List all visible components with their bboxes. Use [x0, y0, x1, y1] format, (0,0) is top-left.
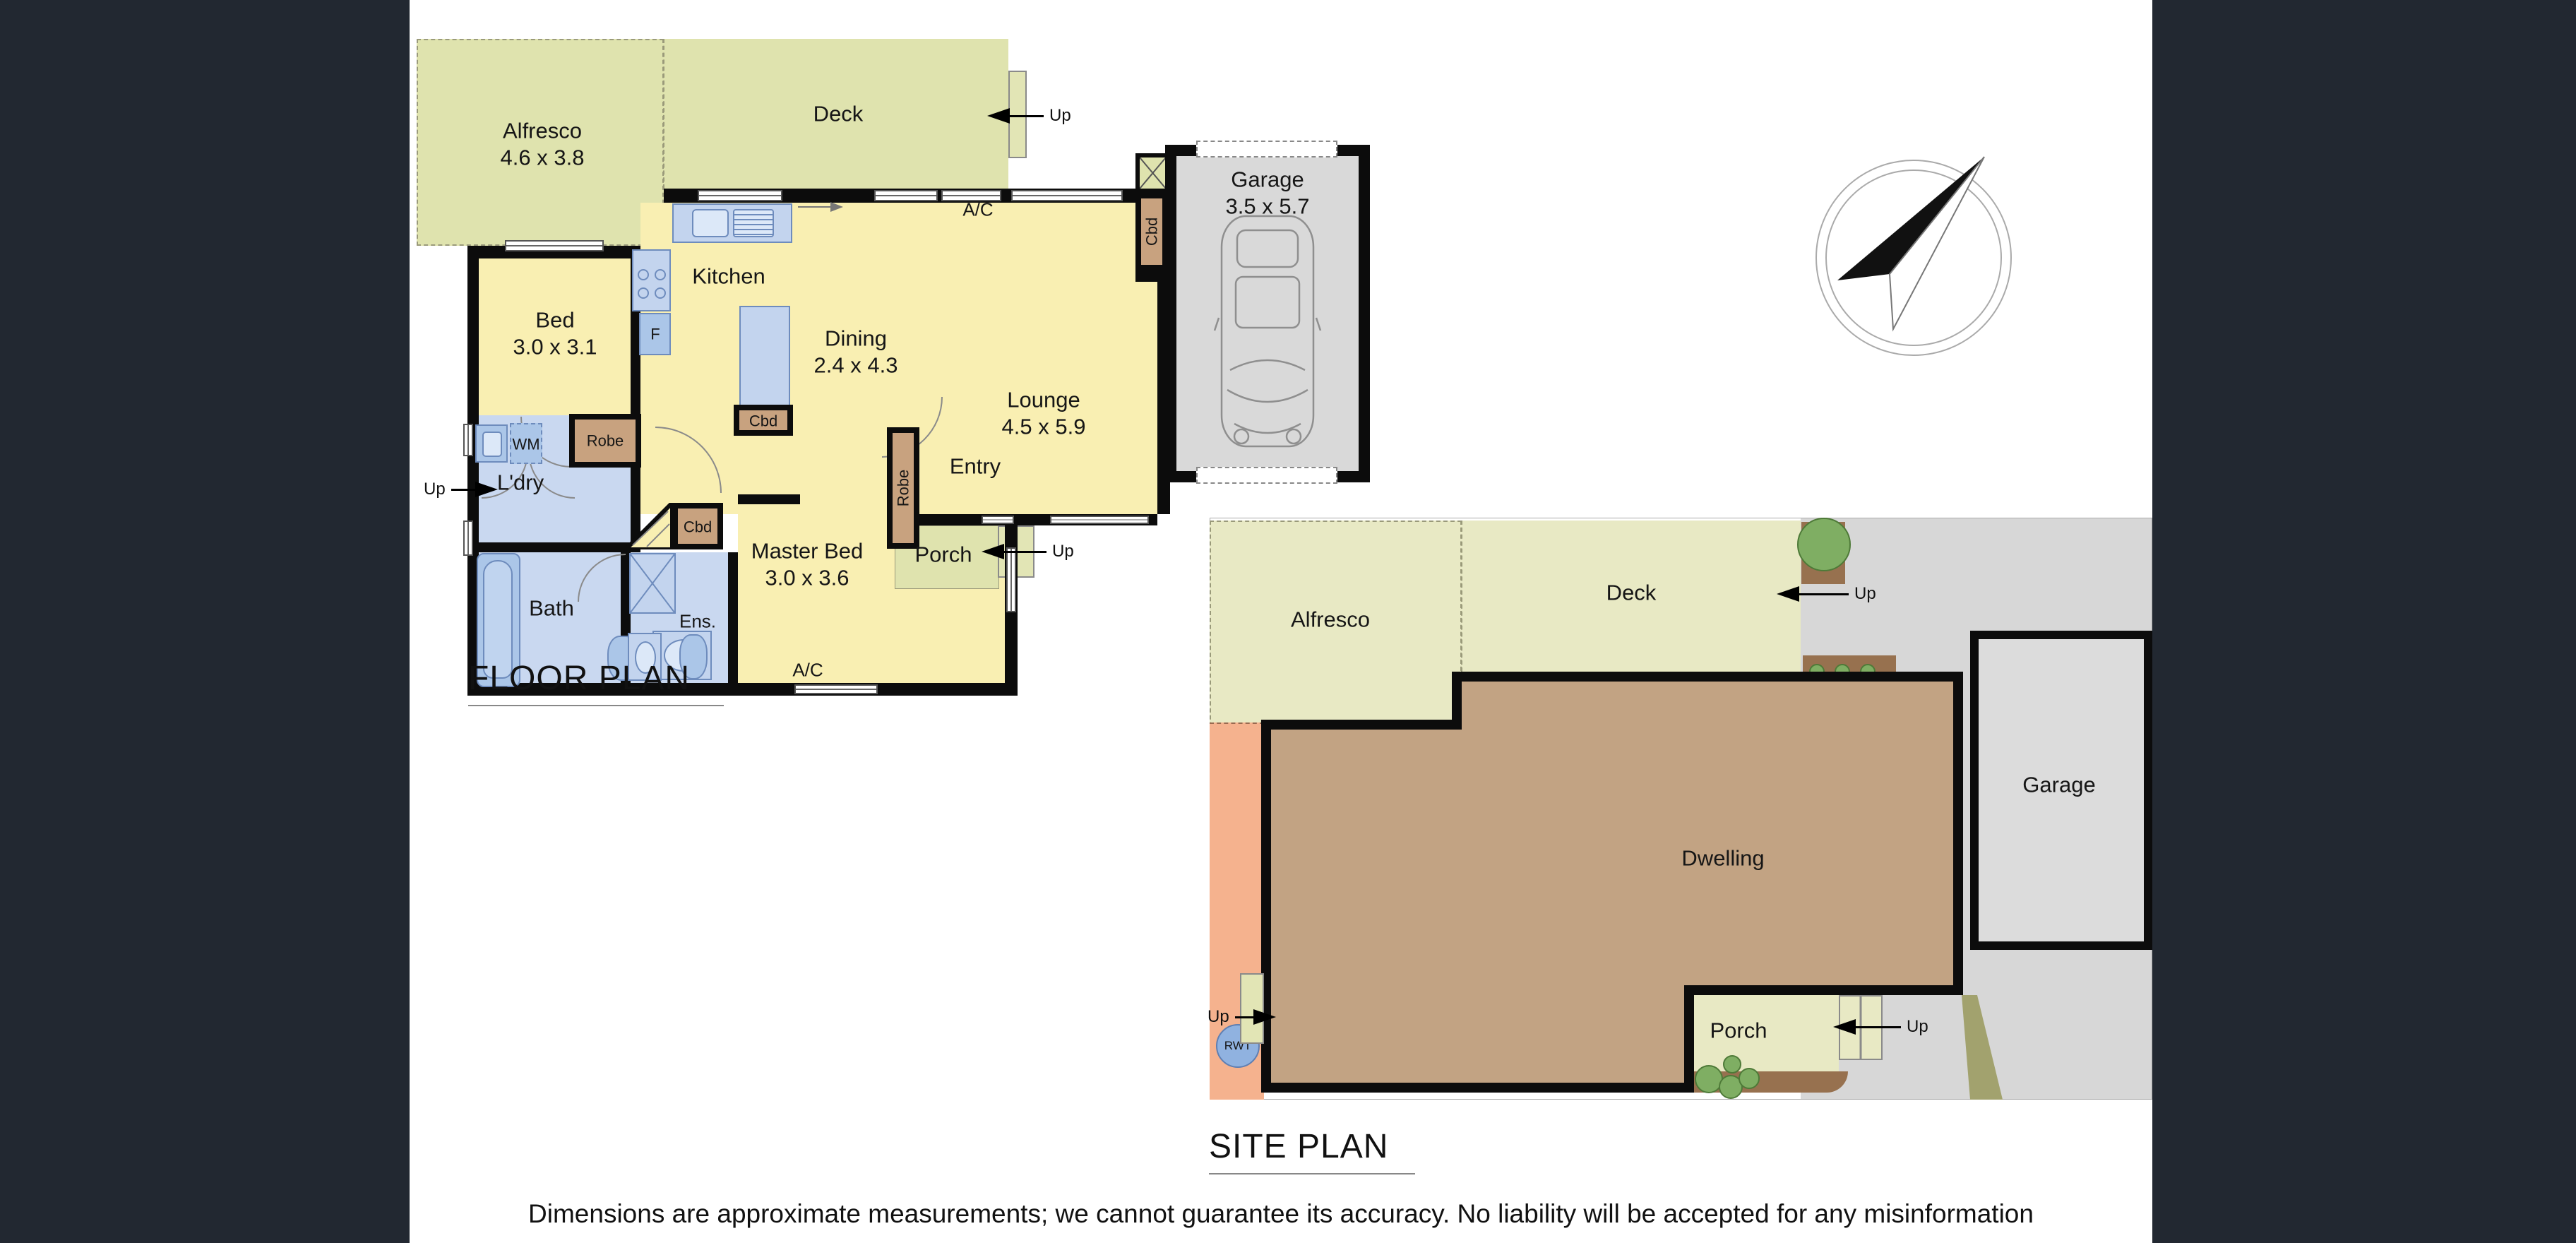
ac-label-master: A/C	[792, 660, 823, 679]
entry-window-2	[1050, 516, 1149, 524]
car-icon	[1213, 212, 1322, 452]
lounge-window-1	[874, 190, 938, 201]
site-left-up-arrow: Up	[1202, 1007, 1276, 1027]
shrub-icon	[1723, 1055, 1741, 1073]
deck-up-arrow: Up	[987, 106, 1077, 126]
site-porch-label: Porch	[1710, 1020, 1767, 1043]
side-garden-wedge	[1949, 995, 2008, 1100]
master-bed-label: Master Bed	[751, 540, 864, 564]
garage-door-bottom	[1196, 467, 1337, 484]
entry-top-window	[1011, 190, 1123, 201]
hall-void-hatch	[626, 503, 672, 549]
laundry-label: L'dry	[497, 472, 544, 495]
right-dark-band	[2152, 0, 2576, 1243]
left-dark-band	[0, 0, 410, 1243]
laundry-up-arrow: Up	[418, 480, 498, 499]
bed-window	[505, 240, 604, 251]
dining-label: Dining	[825, 328, 887, 351]
site-dwelling-label: Dwelling	[1681, 847, 1764, 871]
alfresco-deck-divider	[663, 39, 664, 189]
bed-dims: 3.0 x 3.1	[513, 336, 597, 359]
lounge-label: Lounge	[1007, 389, 1080, 412]
arrow-left-icon	[982, 544, 1004, 559]
shrub-icon	[1739, 1068, 1760, 1089]
garage-label: Garage	[1231, 169, 1304, 192]
entry-window-1	[982, 516, 1014, 524]
arrow-left-icon	[1833, 1019, 1856, 1035]
porch-up-arrow: Up	[982, 542, 1080, 561]
entry-robe-label: Robe	[895, 470, 911, 507]
washing-machine-label: WM	[512, 436, 539, 452]
disclaimer-text: Dimensions are approximate measurements;…	[410, 1199, 2152, 1229]
master-bed-dims: 3.0 x 3.6	[765, 567, 849, 590]
bath-window	[463, 521, 473, 556]
site-deck-label: Deck	[1606, 582, 1657, 605]
kitchen-label: Kitchen	[692, 266, 765, 289]
site-deck-up-arrow: Up	[1777, 584, 1882, 604]
arrow-left-icon	[987, 108, 1010, 124]
ac-label-top: A/C	[962, 200, 993, 219]
slider-arrow-icon	[798, 202, 843, 212]
site-garage-label: Garage	[2022, 774, 2095, 797]
arrow-left-icon	[1777, 586, 1799, 602]
kitchen-bench-sink	[672, 203, 792, 243]
dwelling-floor-left	[1271, 730, 1462, 1083]
master-cupboard-label: Cbd	[749, 412, 777, 429]
garage-dims: 3.5 x 5.7	[1226, 196, 1310, 219]
garage-door-top	[1196, 141, 1337, 157]
hall-cupboard-label: Cbd	[684, 518, 712, 535]
laundry-window	[463, 424, 473, 456]
arrow-right-icon	[475, 482, 498, 497]
bed-label: Bed	[535, 309, 574, 333]
porch-label: Porch	[915, 544, 972, 567]
compass-icon	[1801, 145, 2027, 371]
fridge-label: F	[650, 326, 660, 342]
lounge-dims: 4.5 x 5.9	[1002, 416, 1086, 439]
site-alfresco-label: Alfresco	[1291, 609, 1370, 632]
shower	[629, 553, 676, 614]
floor-plan-title: FLOOR PLAN	[468, 659, 724, 706]
ensuite-label: Ens.	[679, 612, 716, 631]
garage-cupboard-label: Cbd	[1143, 218, 1159, 246]
bath-label: Bath	[529, 597, 574, 621]
master-bottom-window	[794, 684, 878, 694]
kitchen-window	[698, 190, 782, 201]
site-plan-title: SITE PLAN	[1209, 1127, 1415, 1174]
site-porch-up-arrow: Up	[1833, 1017, 1934, 1037]
alfresco-label: Alfresco	[503, 120, 582, 143]
laundry-trough	[475, 424, 508, 463]
tree-icon	[1797, 518, 1851, 571]
arrow-right-icon	[1253, 1009, 1276, 1025]
floorplan-page: F WM Robe Cbd Cbd Robe Cbd	[0, 0, 2576, 1243]
kitchen-island	[739, 306, 790, 410]
deck-label: Deck	[813, 103, 864, 126]
alfresco-dims: 4.6 x 3.8	[501, 147, 585, 170]
cooktop	[632, 249, 671, 311]
entry-label: Entry	[950, 456, 1001, 479]
bed-robe-label: Robe	[587, 432, 624, 448]
site-deck-divider	[1461, 521, 1462, 672]
dining-dims: 2.4 x 4.3	[814, 355, 898, 378]
